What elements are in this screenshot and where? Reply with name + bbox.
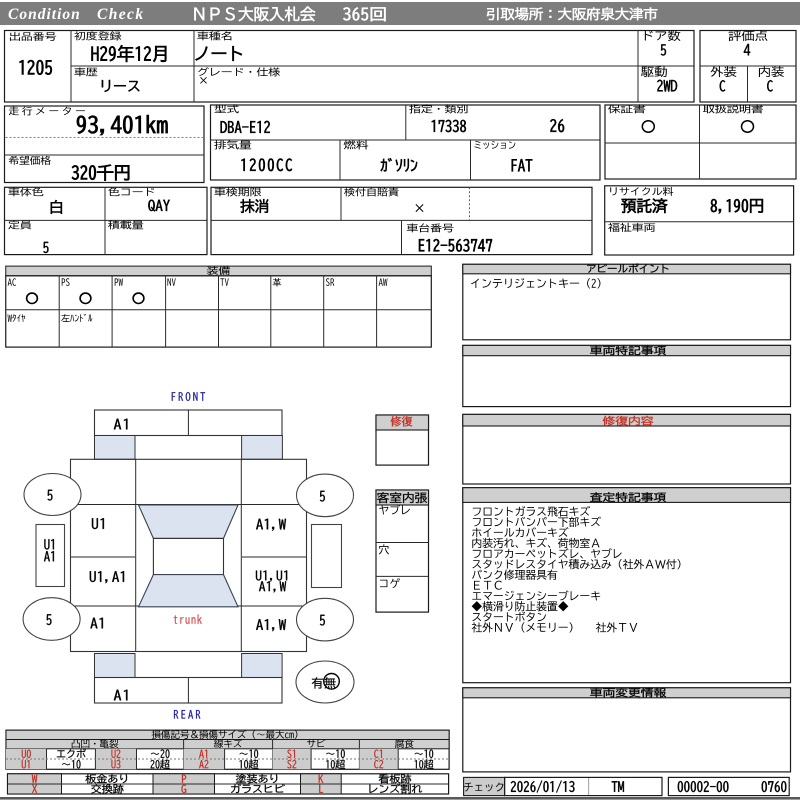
svg-text:Condition: Condition <box>8 6 81 23</box>
svg-text:Check: Check <box>97 6 144 23</box>
